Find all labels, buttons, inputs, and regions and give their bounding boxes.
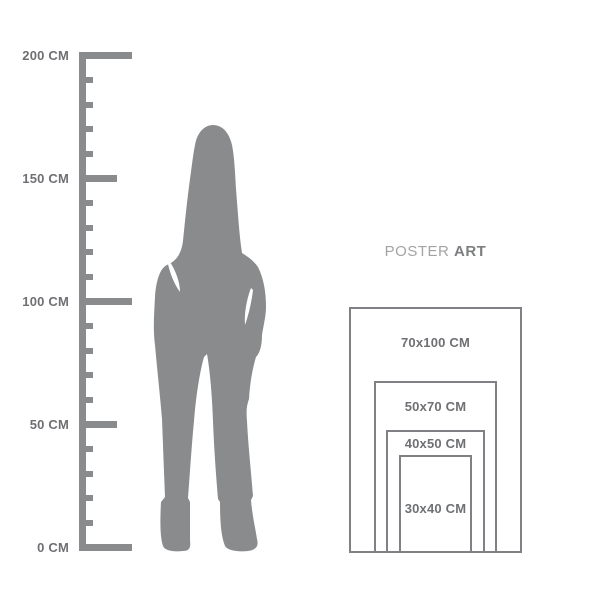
ruler-tick-170cm (79, 126, 93, 132)
ruler-tick-50cm (79, 421, 117, 428)
poster-size-label-40x50: 40x50 CM (388, 436, 482, 451)
ruler-tick-70cm (79, 372, 93, 378)
poster-size-rect-30x40: 30x40 CM (399, 455, 473, 553)
ruler-label-150cm: 150 CM (0, 171, 69, 186)
poster-size-guide: 200 CM150 CM100 CM50 CM0 CM POSTER ART 7… (0, 0, 600, 600)
poster-size-label-50x70: 50x70 CM (376, 399, 495, 414)
title-word-poster: POSTER (385, 243, 450, 260)
ruler-tick-90cm (79, 323, 93, 329)
poster-size-label-30x40: 30x40 CM (401, 501, 471, 516)
ruler-tick-40cm (79, 446, 93, 452)
ruler-tick-150cm (79, 175, 117, 182)
silhouette-body (154, 125, 266, 551)
ruler-tick-30cm (79, 471, 93, 477)
ruler-tick-80cm (79, 348, 93, 354)
poster-art-title: POSTER ART (344, 243, 527, 260)
title-word-art: ART (454, 243, 486, 260)
ruler-label-50cm: 50 CM (0, 417, 69, 432)
ruler-tick-130cm (79, 225, 93, 231)
ruler-tick-100cm (79, 298, 132, 305)
ruler-tick-110cm (79, 274, 93, 280)
poster-size-label-70x100: 70x100 CM (351, 335, 519, 350)
ruler-tick-180cm (79, 102, 93, 108)
ruler-tick-120cm (79, 249, 93, 255)
ruler-tick-0cm (79, 544, 132, 551)
ruler-label-100cm: 100 CM (0, 294, 69, 309)
ruler-tick-60cm (79, 397, 93, 403)
ruler-label-0cm: 0 CM (0, 540, 69, 555)
ruler-tick-160cm (79, 151, 93, 157)
ruler-tick-200cm (79, 52, 132, 59)
ruler-tick-140cm (79, 200, 93, 206)
ruler-tick-10cm (79, 520, 93, 526)
ruler-label-200cm: 200 CM (0, 48, 69, 63)
ruler-tick-190cm (79, 77, 93, 83)
ruler-tick-20cm (79, 495, 93, 501)
woman-silhouette (152, 123, 267, 553)
